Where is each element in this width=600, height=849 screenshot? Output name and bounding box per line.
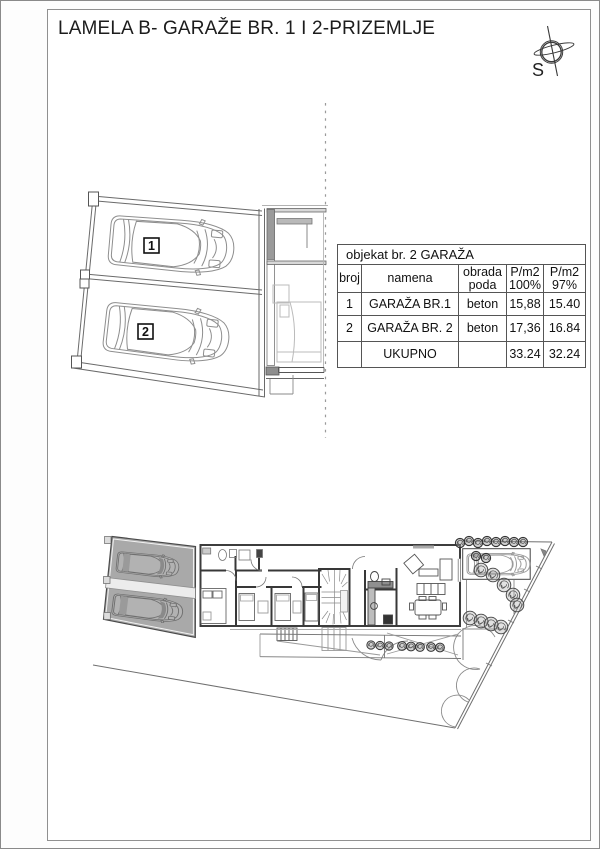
svg-text:S: S [532,60,544,80]
svg-text:2: 2 [142,325,149,339]
svg-text:1: 1 [148,239,155,253]
